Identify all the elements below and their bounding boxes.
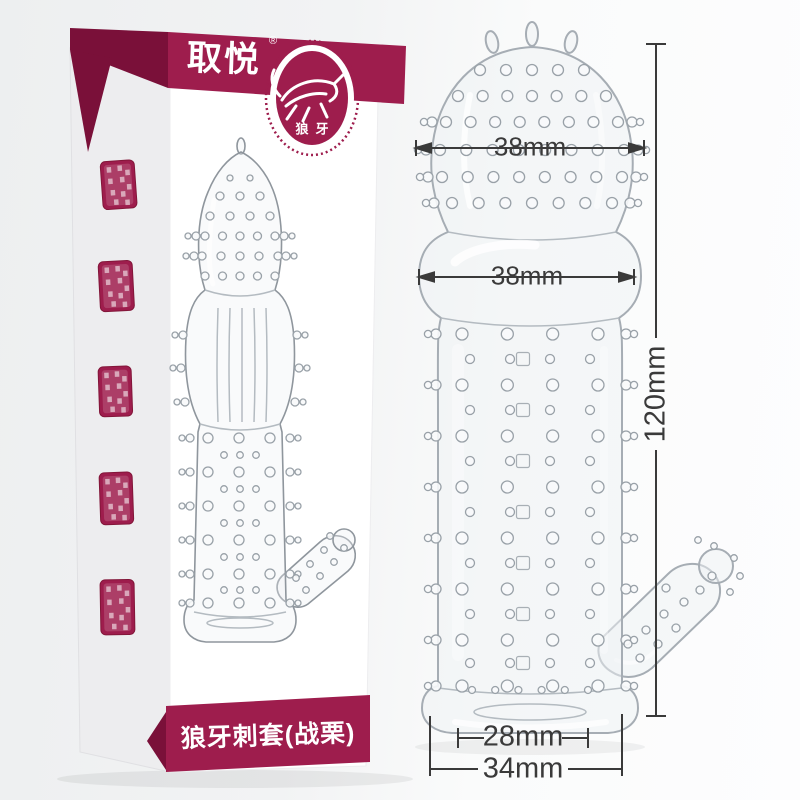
spike [190, 252, 198, 260]
spike [625, 198, 635, 208]
stud [547, 481, 559, 493]
stud [708, 572, 716, 580]
stud [553, 198, 564, 209]
stud [293, 575, 300, 582]
stud [546, 559, 555, 568]
stud [617, 172, 628, 183]
stud [307, 561, 314, 568]
spike [621, 329, 631, 339]
spike [424, 330, 431, 337]
stud [237, 520, 244, 527]
spike [631, 172, 641, 182]
stud [576, 91, 587, 102]
stud [613, 117, 624, 128]
stud [201, 232, 209, 240]
spike [621, 380, 631, 390]
seal-glyph-mark [105, 479, 110, 485]
seal-glyph-mark [115, 266, 120, 272]
stud [547, 430, 559, 442]
seal-glyph-mark [118, 278, 123, 284]
spike [170, 365, 176, 371]
stud [547, 583, 559, 595]
seal-glyph-mark [108, 178, 113, 184]
stud [456, 634, 468, 646]
stud [221, 486, 228, 493]
spike [424, 381, 431, 388]
stud [466, 457, 475, 466]
stud [539, 117, 550, 128]
seal-stamp [98, 366, 133, 417]
stud [477, 91, 488, 102]
spike [179, 435, 185, 441]
spike [429, 198, 439, 208]
stud [456, 379, 468, 391]
spike [185, 233, 191, 239]
seal-glyph-mark [117, 398, 122, 404]
spike [186, 502, 194, 510]
spike [286, 434, 294, 442]
seal-glyph-mark [114, 199, 119, 205]
stud [580, 198, 591, 209]
spike [630, 534, 637, 541]
spike [424, 483, 431, 490]
stud [461, 145, 472, 156]
stud [234, 535, 244, 545]
stud [441, 117, 452, 128]
spike [416, 173, 423, 180]
stud [466, 659, 475, 668]
seal-glyph-mark [125, 199, 130, 205]
badge-label: 狼牙 [288, 119, 335, 138]
stud [253, 520, 260, 527]
seal-glyph-mark [125, 590, 130, 596]
stud [236, 232, 244, 240]
spike [423, 172, 433, 182]
seal-glyph-mark [123, 482, 128, 488]
stud [591, 172, 602, 183]
stud [607, 198, 618, 209]
stud [546, 508, 555, 517]
spike [183, 253, 189, 259]
spike [422, 199, 429, 206]
seal-glyph-mark [121, 407, 126, 413]
stud [546, 610, 555, 619]
seal-glyph-mark [118, 293, 123, 299]
stud [501, 481, 513, 493]
seal-glyph-mark [117, 165, 122, 171]
spike [291, 253, 297, 259]
stud [592, 379, 604, 391]
product-render [414, 22, 743, 755]
stud [271, 272, 279, 280]
spike [282, 252, 290, 260]
stud [237, 554, 244, 561]
seal-glyph-mark [118, 505, 123, 511]
stud [198, 252, 206, 260]
stud [203, 433, 213, 443]
stud [456, 481, 468, 493]
stud [727, 589, 734, 596]
seal-glyph-mark [110, 406, 115, 412]
spike [630, 483, 637, 490]
seal-glyph-mark [126, 607, 131, 613]
spike [300, 399, 306, 405]
spike [431, 482, 441, 492]
stud [254, 272, 262, 280]
stud [538, 687, 545, 694]
seal-glyph-mark [119, 615, 124, 621]
stud [475, 65, 486, 76]
stud [506, 610, 515, 619]
stud [619, 145, 630, 156]
stud [546, 355, 555, 364]
seal-glyph-mark [106, 586, 111, 592]
seal-glyph-mark [123, 302, 128, 308]
spike [302, 332, 308, 338]
dim-label-length: 120mm [640, 346, 673, 443]
stud [447, 198, 458, 209]
stud [236, 192, 244, 200]
stud [592, 634, 604, 646]
stud [265, 433, 275, 443]
spike [174, 399, 180, 405]
spike [630, 381, 637, 388]
stud [527, 65, 538, 76]
stud [506, 508, 515, 517]
stud [453, 91, 464, 102]
spike [186, 570, 194, 578]
spike [289, 233, 295, 239]
stud [547, 680, 559, 692]
spike [295, 537, 301, 543]
seal-glyph-mark [105, 385, 110, 391]
stud [563, 117, 574, 128]
stud [506, 355, 515, 364]
seal-glyph-mark [125, 170, 130, 176]
stud [203, 535, 213, 545]
dim-label-base-width: 34mm [483, 753, 564, 786]
spike [424, 534, 431, 541]
stud [456, 680, 468, 692]
dim-label-opening-width: 28mm [483, 721, 564, 754]
stud [551, 91, 562, 102]
stud [553, 65, 564, 76]
spike [179, 503, 185, 509]
seal-glyph-mark [123, 270, 128, 276]
seal-glyph-mark [108, 291, 113, 297]
stud [579, 65, 590, 76]
stud [592, 328, 604, 340]
spike [431, 635, 441, 645]
spike [621, 431, 631, 441]
spike [431, 329, 441, 339]
stud [680, 598, 688, 606]
stud [274, 252, 282, 260]
seal-glyph-mark [110, 190, 115, 196]
stud [327, 533, 334, 540]
stud [466, 406, 475, 415]
spike [286, 468, 294, 476]
stud [271, 232, 279, 240]
seal-glyph-mark [124, 498, 129, 504]
stud [527, 198, 538, 209]
spike [192, 232, 200, 240]
seal-stamp [100, 160, 137, 210]
spike [431, 681, 441, 691]
stud [341, 545, 348, 552]
spike [636, 118, 643, 125]
stud [317, 573, 324, 580]
seal-glyph-mark [107, 397, 112, 403]
spike [424, 585, 431, 592]
stud [265, 535, 275, 545]
spike [630, 330, 637, 337]
stud [237, 452, 244, 459]
spike [621, 482, 631, 492]
stud [492, 687, 499, 694]
seal-stamp [99, 472, 134, 525]
seal-stamp [100, 579, 135, 635]
trademark-mark: ® [269, 35, 277, 47]
spike [424, 432, 431, 439]
seal-glyph-mark [120, 177, 125, 183]
stud [506, 406, 515, 415]
seal-stamp [98, 260, 135, 312]
product-box [57, 28, 413, 788]
stud [592, 481, 604, 493]
stud [514, 117, 525, 128]
stud [490, 117, 501, 128]
spike [640, 173, 647, 180]
stud [331, 559, 338, 566]
stud [506, 457, 515, 466]
spike [179, 469, 185, 475]
stud [466, 559, 475, 568]
spike [431, 380, 441, 390]
spike [291, 398, 299, 406]
stud [201, 272, 209, 280]
stud [303, 587, 310, 594]
stud [592, 583, 604, 595]
stud [624, 640, 632, 648]
stud [234, 433, 244, 443]
stud [586, 559, 595, 568]
spike [621, 533, 631, 543]
brand-logo: 取悦 [186, 29, 262, 83]
spike [431, 431, 441, 441]
stud [586, 406, 595, 415]
stud [469, 687, 476, 694]
stud [539, 172, 550, 183]
seal-glyph-mark [107, 167, 112, 173]
stud [501, 379, 513, 391]
spike [304, 365, 310, 371]
stud [546, 659, 555, 668]
spike [424, 636, 431, 643]
stud [527, 91, 538, 102]
stud [221, 452, 228, 459]
spike [179, 571, 185, 577]
stud [696, 586, 704, 594]
seal-glyph-mark [116, 477, 121, 483]
stud [253, 452, 260, 459]
seal-glyph-mark [117, 585, 122, 591]
stud [227, 175, 233, 181]
stud [206, 212, 214, 220]
stud [221, 587, 228, 594]
stud [466, 610, 475, 619]
seal-glyph-mark [118, 490, 123, 496]
spike [286, 599, 294, 607]
spike [280, 232, 288, 240]
stud [586, 508, 595, 517]
stud [566, 145, 577, 156]
stud [246, 212, 254, 220]
spike [621, 584, 631, 594]
stud [247, 175, 253, 181]
stud [737, 573, 744, 580]
box-shadow [57, 770, 413, 788]
spike [181, 398, 189, 406]
spike [424, 682, 431, 689]
spike [427, 117, 437, 127]
stud [500, 198, 511, 209]
stud [501, 680, 513, 692]
spike [177, 364, 185, 372]
seal-glyph-mark [112, 624, 117, 630]
stud [456, 583, 468, 595]
stud [255, 252, 263, 260]
seal-glyph-mark [122, 515, 127, 521]
stud [731, 555, 738, 562]
stud [219, 232, 227, 240]
stud [466, 355, 475, 364]
seal-glyph-mark [127, 184, 132, 190]
stud [234, 501, 244, 511]
seal-glyph-mark [108, 504, 113, 510]
stud [265, 501, 275, 511]
stud [586, 659, 595, 668]
spike [295, 435, 301, 441]
stud [642, 626, 650, 634]
stud [711, 543, 718, 550]
stud [592, 532, 604, 544]
stud [501, 583, 513, 595]
stud [236, 272, 244, 280]
spike [172, 332, 178, 338]
stud [565, 172, 576, 183]
stud [266, 212, 274, 220]
stud [546, 406, 555, 415]
spike [186, 599, 194, 607]
seal-glyph-mark [117, 383, 122, 389]
stud [253, 486, 260, 493]
spike [630, 585, 637, 592]
spike [293, 331, 301, 339]
spike [420, 118, 427, 125]
stud [506, 559, 515, 568]
seal-glyph-mark [107, 600, 112, 606]
stud [203, 598, 213, 608]
stud [592, 680, 604, 692]
spike [634, 199, 641, 206]
spike [179, 537, 185, 543]
seal-glyph-mark [104, 267, 109, 273]
spike [431, 584, 441, 594]
seal-glyph-mark [109, 613, 114, 619]
spike [186, 434, 194, 442]
stud [660, 610, 668, 618]
stud [217, 252, 225, 260]
dim-label-bulb-width: 38mm [491, 261, 563, 292]
seal-glyph-mark [115, 371, 120, 377]
spike [295, 503, 301, 509]
stud [586, 457, 595, 466]
spike [295, 469, 301, 475]
stud [219, 272, 227, 280]
spike [179, 600, 185, 606]
spike [186, 468, 194, 476]
seal-glyph-mark [124, 285, 129, 291]
stud [662, 584, 670, 592]
spike [179, 331, 187, 339]
spike [627, 117, 637, 127]
stud [586, 610, 595, 619]
stud [465, 117, 476, 128]
stud [547, 532, 559, 544]
spike [295, 600, 301, 606]
spike [295, 364, 303, 372]
stud [256, 192, 264, 200]
stud [437, 172, 448, 183]
stud [237, 587, 244, 594]
stud [254, 232, 262, 240]
stud [547, 328, 559, 340]
stud [265, 598, 275, 608]
spike [621, 681, 631, 691]
stud [501, 430, 513, 442]
seal-glyph-mark [104, 373, 109, 379]
seal-glyph-mark [123, 625, 128, 631]
spike [630, 682, 637, 689]
stud [456, 328, 468, 340]
stud [546, 457, 555, 466]
stud [636, 654, 644, 662]
stud [586, 355, 595, 364]
dim-label-head-width: 38mm [494, 132, 566, 163]
stud [592, 430, 604, 442]
stud [561, 687, 568, 694]
stud [221, 520, 228, 527]
stud [672, 624, 680, 632]
stud [253, 587, 260, 594]
stud [435, 145, 446, 156]
seal-glyph-mark [121, 191, 126, 197]
seal-glyph-mark [119, 598, 124, 604]
stud [321, 547, 328, 554]
stud [234, 467, 244, 477]
spike [286, 536, 294, 544]
stud [547, 379, 559, 391]
stud [462, 172, 473, 183]
scene-graphics [0, 0, 800, 800]
stud [502, 91, 513, 102]
stud [216, 192, 224, 200]
stud [203, 501, 213, 511]
stud [456, 430, 468, 442]
seal-glyph-mark [123, 391, 128, 397]
stud [234, 598, 244, 608]
